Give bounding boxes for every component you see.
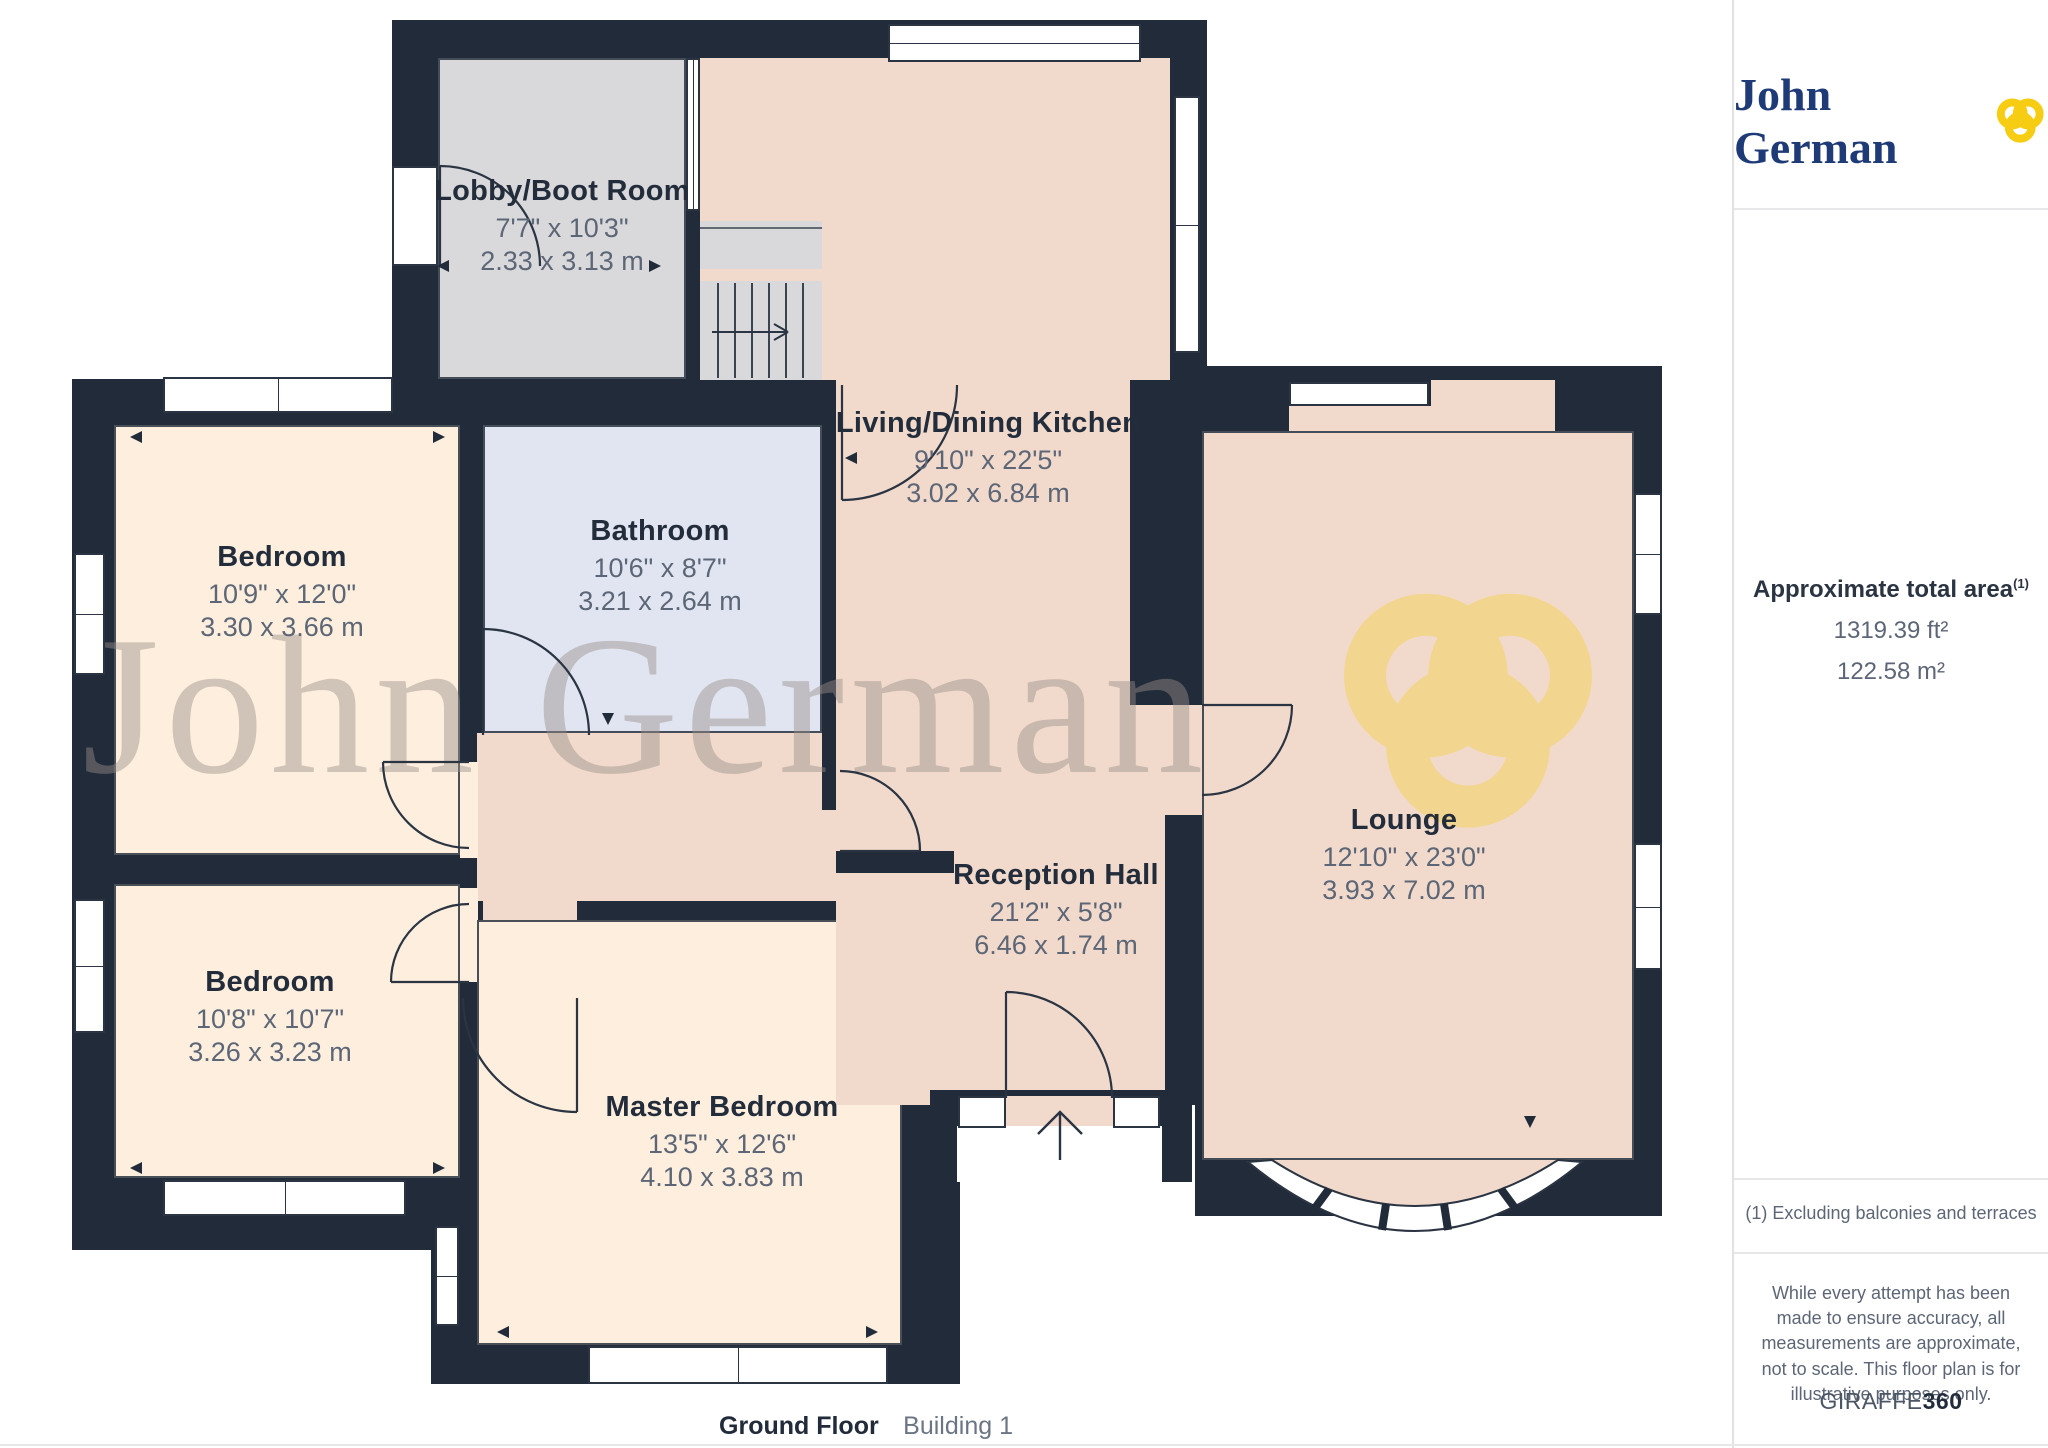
sidebar-divider [1734, 208, 2048, 210]
entrance-arrow-icon [1038, 1112, 1082, 1160]
info-sidebar: John German Approximate total area(1) 13… [1732, 0, 2048, 1448]
kitchen-door-icon [840, 771, 920, 851]
floor-footer: Ground Floor Building 1 [719, 1412, 1013, 1441]
giraffe360-brand: GIRAFFE360 [1734, 1388, 2048, 1415]
sidebar-divider [1734, 1252, 2048, 1254]
bathroom-door-icon [483, 629, 589, 735]
master-door-icon [463, 998, 577, 1112]
room-label-master-bedroom: Master Bedroom 13'5" x 12'6" 4.10 x 3.83… [605, 1091, 838, 1193]
sidebar-divider [1734, 1178, 2048, 1180]
building-name: Building 1 [903, 1412, 1013, 1440]
total-area-title: Approximate total area(1) [1734, 576, 2048, 604]
floorplan-canvas: John German Lobby/Boot Room 7'7" x 10'3"… [0, 0, 1732, 1448]
stairs-icon [700, 228, 822, 378]
floor-name: Ground Floor [719, 1412, 879, 1440]
lounge-door-icon [1202, 705, 1292, 795]
stairs-direction-arrow [712, 324, 788, 340]
room-label-bedroom2: Bedroom 10'8" x 10'7" 3.26 x 3.23 m [188, 966, 352, 1068]
floorplan-symbols-layer [0, 0, 1732, 1448]
room-label-bedroom1: Bedroom 10'9" x 12'0" 3.30 x 3.66 m [200, 541, 364, 643]
area-footnote: (1) Excluding balconies and terraces [1734, 1203, 2048, 1224]
brand-logo-text: John German [1734, 68, 1982, 174]
bay-window-icon [1248, 1160, 1582, 1231]
room-label-reception-hall: Reception Hall 21'2" x 5'8" 6.46 x 1.74 … [953, 859, 1159, 961]
footnote-marker: (1) [2013, 576, 2029, 591]
total-area-m: 122.58 m² [1734, 658, 2048, 686]
floorplan-page: John German Lobby/Boot Room 7'7" x 10'3"… [0, 0, 2048, 1448]
entrance-door-icon [1006, 992, 1112, 1098]
bedroom1-door-icon [383, 762, 469, 848]
door-arcs [383, 166, 1292, 1112]
room-label-kitchen: Living/Dining Kitchen 9'10" x 22'5" 3.02… [836, 407, 1140, 509]
total-area-ft: 1319.39 ft² [1734, 617, 2048, 645]
brand-logo: John German [1734, 68, 2048, 174]
room-label-lounge: Lounge 12'10" x 23'0" 3.93 x 7.02 m [1322, 804, 1486, 906]
room-label-bathroom: Bathroom 10'6" x 8'7" 3.21 x 2.64 m [578, 515, 742, 617]
bedroom2-door-icon [391, 904, 469, 982]
room-label-lobby: Lobby/Boot Room 7'7" x 10'3" 2.33 x 3.13… [434, 175, 690, 277]
brand-knot-icon [1992, 94, 2048, 148]
total-area-block: Approximate total area(1) 1319.39 ft² 12… [1734, 576, 2048, 686]
